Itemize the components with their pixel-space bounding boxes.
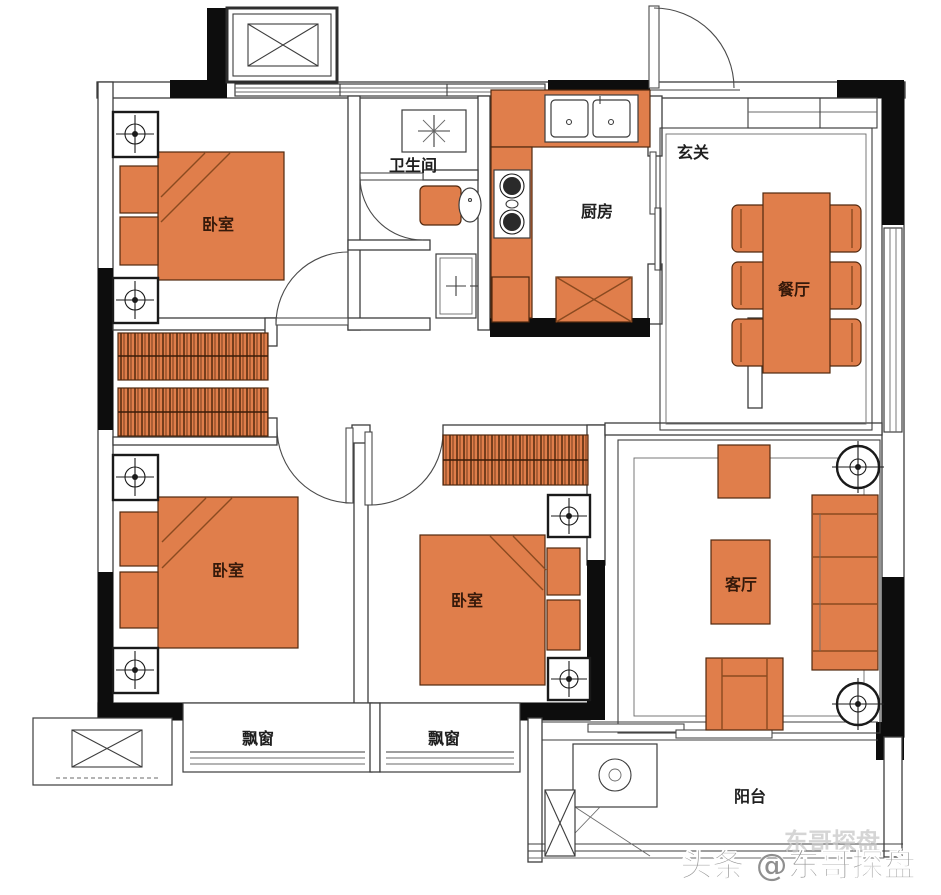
nightstand xyxy=(120,166,158,213)
room-label-bedroom1: 卧室 xyxy=(202,215,234,234)
stove xyxy=(494,170,530,238)
entry-door xyxy=(649,6,740,90)
wall-black-right-lower xyxy=(882,577,904,737)
floor-plan-svg: 卧室 卫生间 xyxy=(0,0,941,895)
window-right-dining xyxy=(884,228,902,432)
room-label-bedroom2: 卧室 xyxy=(212,561,244,580)
column-marker-round xyxy=(832,441,884,493)
balcony-left-wall xyxy=(528,718,542,862)
floor-plan-image: 卧室 卫生间 xyxy=(0,0,941,895)
kitchen-cabinet xyxy=(492,277,529,322)
room-label-dining: 餐厅 xyxy=(777,280,810,299)
room-label-bedroom3: 卧室 xyxy=(451,591,483,610)
wall-corridor-north-b xyxy=(348,318,430,330)
room-label-foyer: 玄关 xyxy=(677,143,709,162)
nightstand xyxy=(547,600,580,650)
vanity-sink xyxy=(436,254,478,318)
foyer-cabinet xyxy=(748,98,877,128)
bedroom-top-left: 卧室 xyxy=(120,152,284,280)
bay-window-left: 飘窗 xyxy=(183,703,372,772)
nightstand xyxy=(547,548,580,595)
toilet xyxy=(420,186,481,225)
wall-bathroom-lower xyxy=(348,240,430,250)
wardrobe xyxy=(443,435,588,485)
bedroom2-door xyxy=(277,428,353,503)
bedroom3-door xyxy=(365,432,443,505)
kitchen-sliding-door xyxy=(650,152,661,270)
wall-black-shaft-column xyxy=(207,8,227,82)
bathroom-sink xyxy=(402,110,466,152)
bay-divider xyxy=(370,703,380,772)
bay-window-label: 飘窗 xyxy=(242,729,274,748)
balcony-right-wall xyxy=(884,737,902,857)
bay-window-right: 飘窗 xyxy=(380,703,520,772)
elevator-shaft xyxy=(227,8,337,82)
room-label-balcony: 阳台 xyxy=(734,787,766,806)
bedroom-bottom-left: 卧室 xyxy=(120,497,298,648)
wall-dining-bottom xyxy=(605,423,882,435)
column-marker xyxy=(113,112,158,157)
kitchen: 厨房 xyxy=(491,90,650,322)
armchair xyxy=(706,658,783,730)
duct-box xyxy=(545,790,575,856)
column-marker xyxy=(548,658,590,700)
nightstand xyxy=(120,217,158,265)
bathroom: 卫生间 xyxy=(389,110,481,318)
kitchen-sink xyxy=(545,95,638,142)
column-marker xyxy=(113,278,158,323)
wall-black-left-lower xyxy=(98,572,113,720)
wardrobe xyxy=(118,388,268,436)
column-marker xyxy=(548,495,590,537)
bay-window-label: 飘窗 xyxy=(428,729,460,748)
bedroom1-door xyxy=(276,252,348,325)
watermark-text: 头条 @东哥探盘 xyxy=(680,846,915,884)
watermark: 东哥探盘 头条 @东哥探盘 xyxy=(680,828,915,884)
wall-bed2-top xyxy=(113,437,277,445)
wall-black-top-left xyxy=(170,80,227,98)
tv-cabinet xyxy=(718,445,770,498)
room-label-kitchen: 厨房 xyxy=(581,202,613,221)
wall-black-bottom-mid xyxy=(513,703,590,720)
nightstand xyxy=(120,512,158,566)
wardrobe xyxy=(118,333,268,380)
ac-platform xyxy=(33,718,172,785)
wall-black-right-upper xyxy=(882,82,904,225)
bed xyxy=(120,497,298,648)
wall-black-left-mid xyxy=(98,268,113,430)
foyer-dining: 玄关 餐厅 xyxy=(677,143,861,373)
column-marker xyxy=(113,455,158,500)
bathroom-door xyxy=(360,173,423,240)
room-label-bathroom: 卫生间 xyxy=(389,156,437,175)
column-marker xyxy=(113,648,158,693)
sofa xyxy=(812,495,878,670)
room-label-living: 客厅 xyxy=(725,575,757,594)
wall-bed1-bath xyxy=(348,96,360,330)
fridge xyxy=(556,277,632,322)
nightstand xyxy=(120,572,158,628)
